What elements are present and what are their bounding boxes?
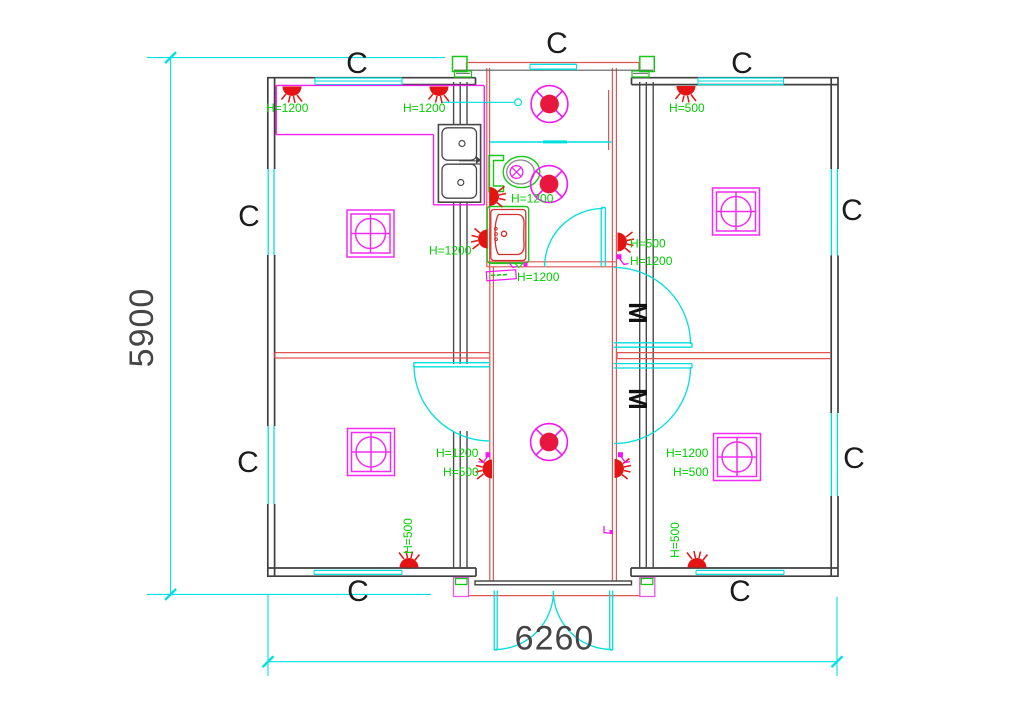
svg-text:H=1200: H=1200 <box>403 101 446 115</box>
svg-text:H=500: H=500 <box>669 101 705 115</box>
svg-text:H=500: H=500 <box>630 237 666 251</box>
svg-text:5900: 5900 <box>123 288 161 368</box>
svg-text:M: M <box>623 388 653 410</box>
svg-text:C: C <box>731 47 753 80</box>
svg-text:H=1200: H=1200 <box>517 270 560 284</box>
svg-text:H=1200: H=1200 <box>436 446 479 460</box>
svg-text:M: M <box>623 302 653 324</box>
svg-text:H=500: H=500 <box>443 465 479 479</box>
svg-text:C: C <box>347 575 369 608</box>
svg-text:C: C <box>841 194 863 227</box>
svg-text:H=500: H=500 <box>401 518 415 554</box>
svg-text:C: C <box>729 575 751 608</box>
svg-text:C: C <box>546 27 568 60</box>
svg-text:C: C <box>237 446 259 479</box>
svg-text:C: C <box>843 442 865 475</box>
svg-text:H=1200: H=1200 <box>511 192 554 206</box>
svg-text:C: C <box>346 47 368 80</box>
svg-text:C: C <box>238 200 260 233</box>
svg-text:6260: 6260 <box>515 620 595 658</box>
svg-text:H=500: H=500 <box>673 465 709 479</box>
svg-text:H=1200: H=1200 <box>666 446 709 460</box>
svg-text:H=1200: H=1200 <box>429 244 472 258</box>
svg-text:H=1200: H=1200 <box>630 254 673 268</box>
svg-text:H=500: H=500 <box>668 522 682 558</box>
svg-text:H=1200: H=1200 <box>266 101 309 115</box>
